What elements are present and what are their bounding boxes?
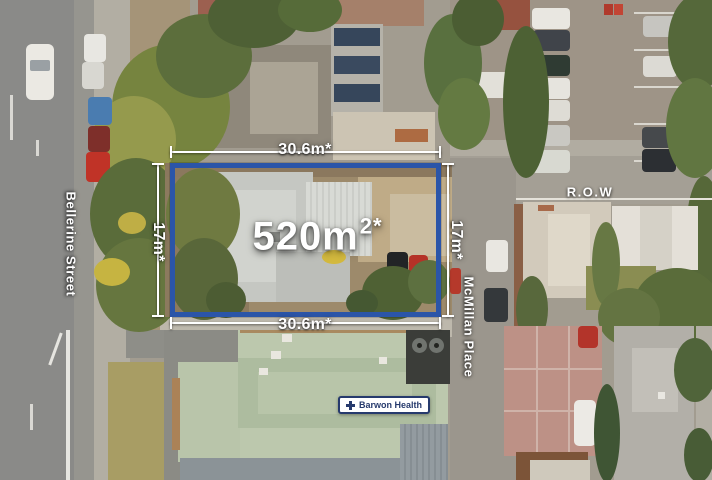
- dimension-label-bottom: 30.6m*: [278, 316, 331, 334]
- area-label: 520m2*: [252, 215, 381, 260]
- street-label-bellerine: Bellerine Street: [64, 192, 79, 297]
- dimension-label-top: 30.6m*: [278, 141, 331, 159]
- medical-cross-icon: [346, 401, 355, 410]
- row-lane-label: R.O.W: [567, 185, 614, 200]
- area-superscript: 2*: [360, 213, 383, 238]
- badge-label: Barwon Health: [359, 400, 422, 410]
- annotations-layer: 30.6m* 30.6m* 17m* 17m* 520m2* Bellerine…: [0, 0, 712, 480]
- dimension-label-right: 17m*: [447, 220, 465, 259]
- aerial-property-photo: 30.6m* 30.6m* 17m* 17m* 520m2* Bellerine…: [0, 0, 712, 480]
- area-value: 520m: [252, 215, 358, 259]
- dimension-label-left: 17m*: [149, 222, 167, 261]
- street-label-mcmillan: McMillan Place: [462, 277, 477, 378]
- barwon-health-badge: Barwon Health: [338, 396, 430, 414]
